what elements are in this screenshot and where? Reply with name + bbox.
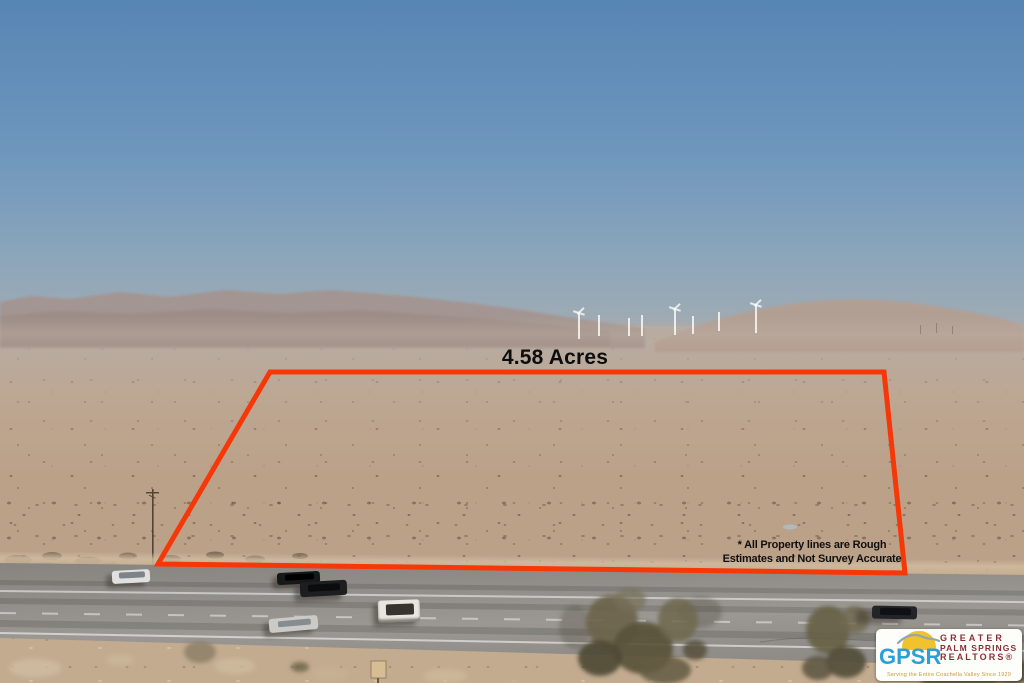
brokerage-name: GREATER PALM SPRINGS REALTORS® <box>940 634 1020 663</box>
disclaimer-line1: * All Property lines are Rough <box>712 539 912 553</box>
brokerage-name-line3: REALTORS® <box>940 653 1020 663</box>
gpsr-abbr: GPSR <box>879 644 941 670</box>
brokerage-logo: GPSR GREATER PALM SPRINGS REALTORS® Serv… <box>876 629 1022 681</box>
property-outline-layer <box>0 0 1024 683</box>
listing-photo: 4.58 Acres * All Property lines are Roug… <box>0 0 1024 683</box>
disclaimer: * All Property lines are Rough Estimates… <box>712 539 912 566</box>
acreage-label: 4.58 Acres <box>455 346 655 370</box>
brokerage-tagline: Serving the Entire Coachella Valley Sinc… <box>876 672 1022 678</box>
disclaimer-line2: Estimates and Not Survey Accurate <box>712 553 912 567</box>
